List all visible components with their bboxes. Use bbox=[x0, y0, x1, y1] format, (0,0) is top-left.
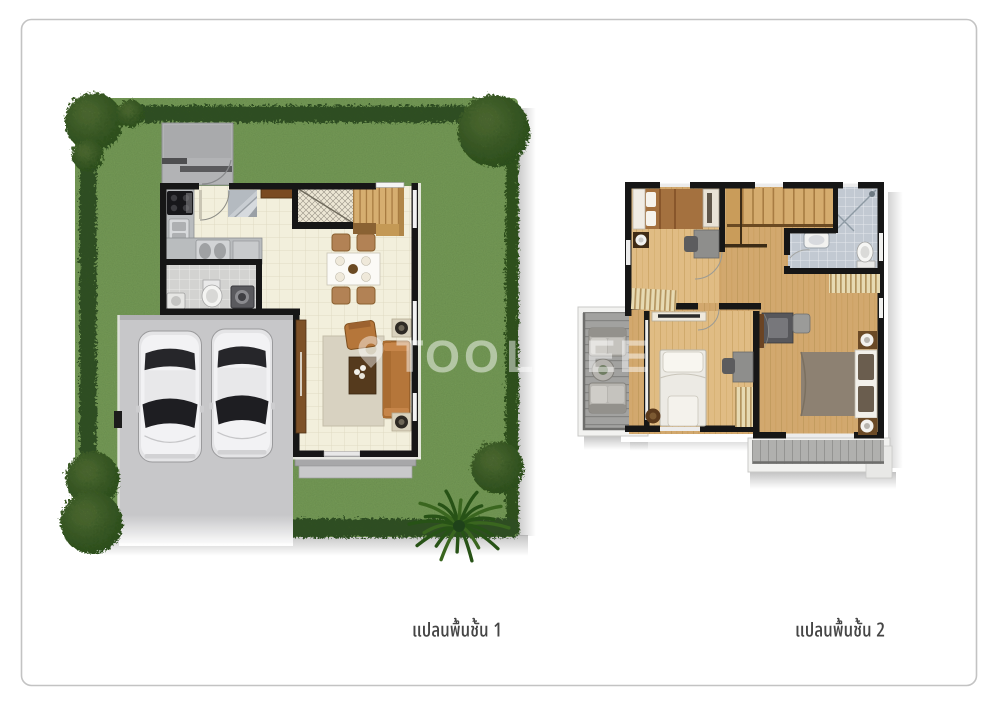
svg-text:T: T bbox=[396, 331, 424, 382]
svg-text:L: L bbox=[506, 331, 534, 382]
svg-text:E: E bbox=[619, 331, 649, 382]
svg-text:O: O bbox=[464, 331, 499, 382]
svg-text:O: O bbox=[425, 331, 460, 382]
svg-text:E: E bbox=[586, 331, 616, 382]
